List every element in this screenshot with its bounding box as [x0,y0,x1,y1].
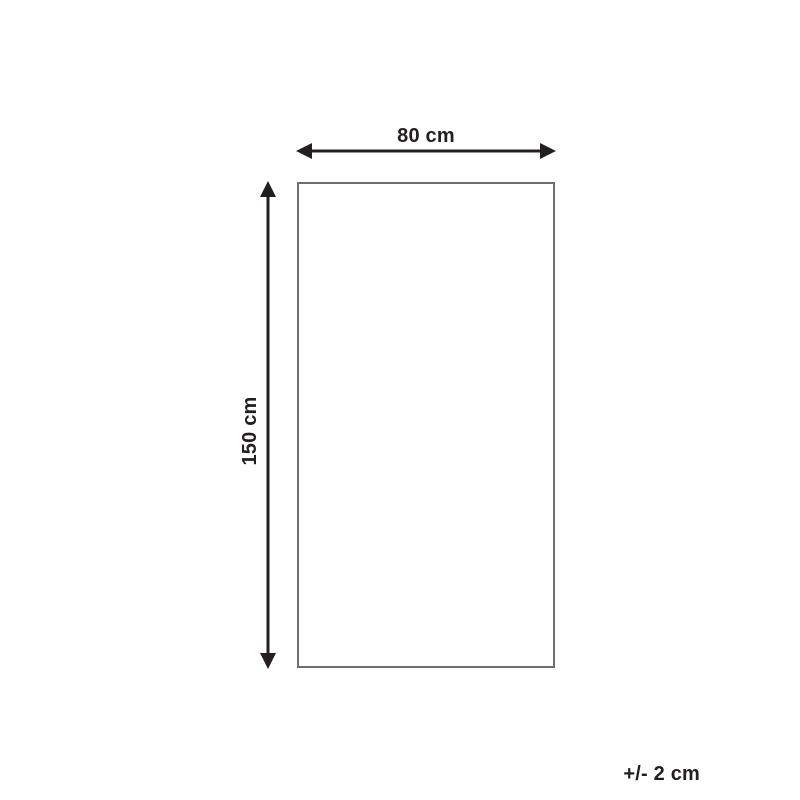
product-outline-rect [298,183,554,667]
height-dimension-label: 150 cm [238,370,262,492]
height-arrowhead-bottom-icon [260,653,276,669]
width-dimension-label: 80 cm [297,124,555,148]
dimension-diagram-canvas [0,0,800,800]
tolerance-label: +/- 2 cm [623,762,700,786]
dimension-diagram: 80 cm 150 cm +/- 2 cm [0,0,800,800]
height-arrowhead-top-icon [260,181,276,197]
